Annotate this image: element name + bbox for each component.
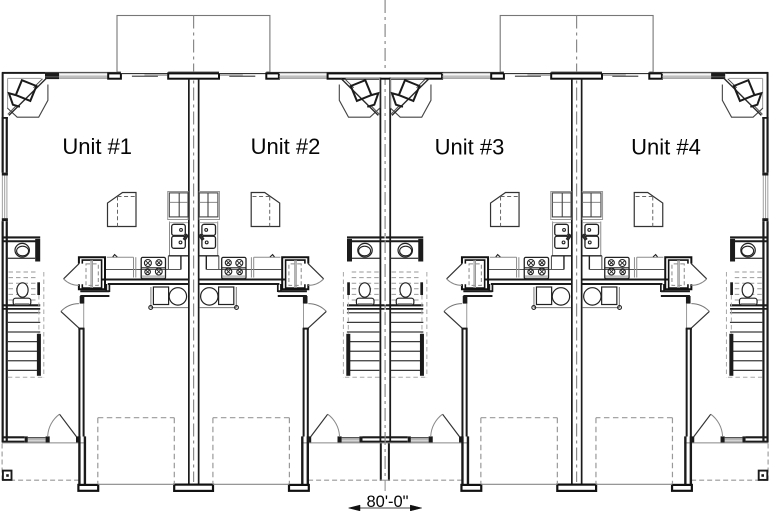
svg-text:Unit #3: Unit #3	[435, 135, 505, 160]
svg-text:Unit #2: Unit #2	[251, 134, 321, 159]
svg-text:Unit #4: Unit #4	[631, 135, 701, 160]
svg-text:80'-0": 80'-0"	[366, 493, 408, 511]
svg-text:Unit #1: Unit #1	[62, 134, 132, 159]
